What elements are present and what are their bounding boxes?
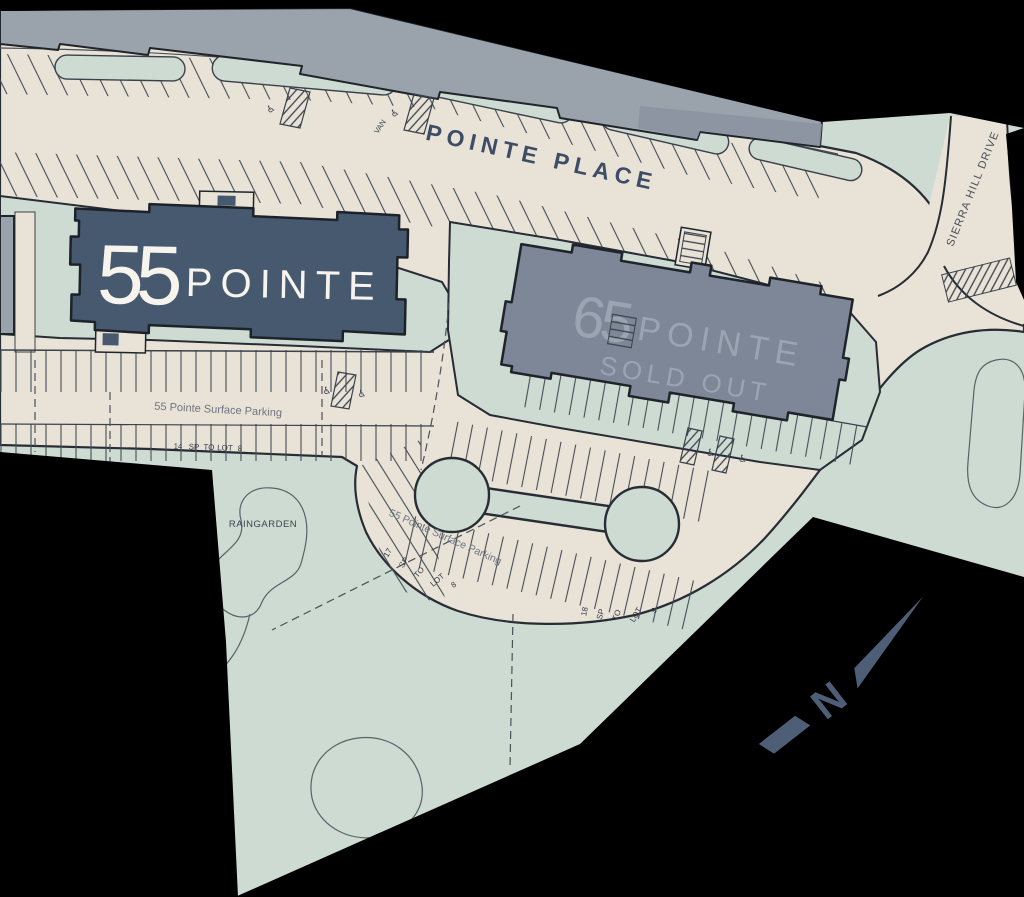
site-plan-map: 55 Pointe Surface Parking 14 SP TO LOT 8… (0, 0, 1024, 897)
svg-text:LOT: LOT (217, 443, 233, 453)
accessible-icon: ♿ (358, 389, 367, 400)
svg-text:14: 14 (173, 442, 183, 451)
building-65-entry-hatch (680, 232, 707, 265)
building-55-name: POINTE (185, 261, 383, 309)
building-55-entry-door-north (217, 196, 235, 206)
building-55-entry-door-south (103, 333, 119, 345)
black-frame-bottom-left (0, 452, 238, 897)
loop-island-east (605, 487, 679, 561)
site-plan-page: 55 Pointe Surface Parking 14 SP TO LOT 8… (0, 0, 1024, 897)
accessible-icon: ♿ (323, 386, 332, 397)
neighbor-building-partial (0, 216, 14, 334)
accessible-icon: ♿ (737, 453, 748, 465)
accessible-icon: ♿ (705, 447, 716, 459)
loop-island-west (415, 458, 489, 532)
left-drive-aisle (15, 212, 35, 352)
raingarden-label: RAINGARDEN (229, 519, 297, 530)
svg-text:TO: TO (203, 443, 214, 452)
svg-text:SP: SP (189, 442, 200, 451)
building-55-number: 55 (96, 227, 181, 323)
